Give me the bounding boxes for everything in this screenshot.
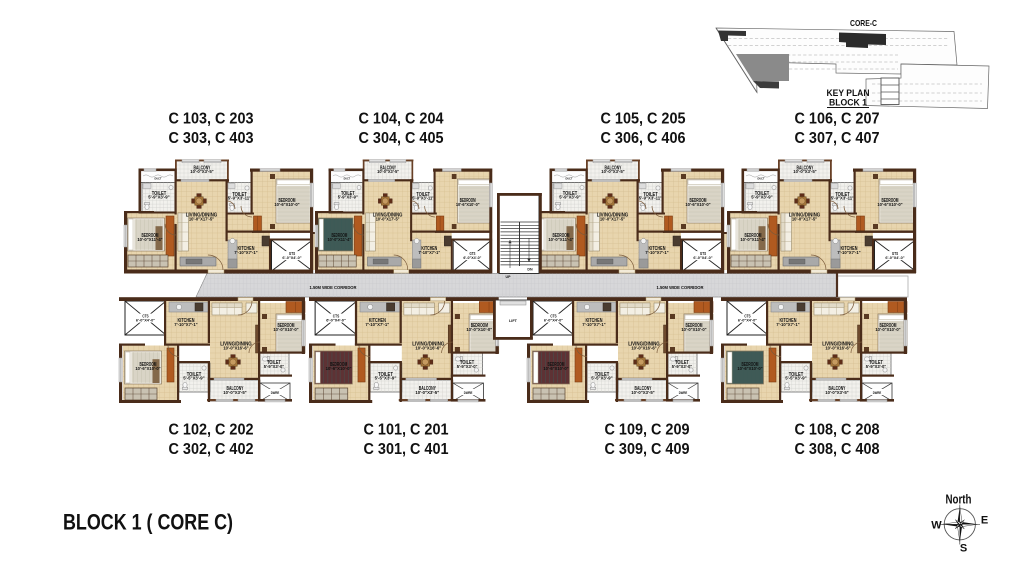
svg-text:10'-0"X10'-0": 10'-0"X10'-0" — [875, 327, 900, 332]
svg-text:10'-0"X17'-5": 10'-0"X17'-5" — [189, 216, 214, 221]
svg-text:5'-9"X3'-9": 5'-9"X3'-9" — [148, 195, 169, 200]
svg-text:C 306, C 406: C 306, C 406 — [601, 130, 686, 147]
svg-text:5'-9"X3'-0": 5'-9"X3'-0" — [264, 364, 284, 369]
svg-text:5'-9"X3'-0": 5'-9"X3'-0" — [672, 364, 692, 369]
svg-text:C 108, C 208: C 108, C 208 — [795, 421, 880, 438]
svg-text:10'-0"X16'-6": 10'-0"X16'-6" — [825, 345, 850, 350]
svg-text:6'-0"X4'-0": 6'-0"X4'-0" — [693, 255, 712, 260]
svg-text:10'-0"X3'-5": 10'-0"X3'-5" — [793, 169, 816, 174]
svg-text:10'-0"X16'-6": 10'-0"X16'-6" — [415, 345, 441, 350]
svg-text:C 104, C 204: C 104, C 204 — [359, 110, 444, 127]
svg-text:6'-0"X4'-0": 6'-0"X4'-0" — [136, 317, 155, 322]
svg-text:10'-0"X11'-4": 10'-0"X11'-4" — [548, 237, 573, 242]
svg-text:E: E — [981, 515, 988, 527]
svg-text:6'-0"X4'-0": 6'-0"X4'-0" — [282, 255, 301, 260]
svg-text:UP: UP — [506, 275, 512, 279]
svg-text:DUCT: DUCT — [758, 176, 765, 180]
svg-text:10'-0"X17'-5": 10'-0"X17'-5" — [600, 216, 625, 221]
svg-text:C 307, C 407: C 307, C 407 — [795, 130, 880, 147]
svg-text:10'-0"X11'-4": 10'-0"X11'-4" — [137, 237, 162, 242]
svg-text:C 302, C 402: C 302, C 402 — [169, 441, 254, 458]
svg-text:C 303, C 403: C 303, C 403 — [169, 130, 254, 147]
svg-text:10'-0"X16'-6": 10'-0"X16'-6" — [631, 345, 656, 350]
svg-text:6'-0"X4'-0": 6'-0"X4'-0" — [463, 256, 481, 260]
svg-text:5'-9"X3'-11": 5'-9"X3'-11" — [228, 196, 251, 201]
svg-text:1.50M WIDE CORRIDOR: 1.50M WIDE CORRIDOR — [310, 285, 358, 290]
svg-text:C 301, C 401: C 301, C 401 — [364, 441, 449, 458]
svg-text:6'-0"X4'-0": 6'-0"X4'-0" — [326, 317, 346, 322]
svg-text:DN: DN — [527, 268, 533, 272]
svg-text:7'-10"X7'-1": 7'-10"X7'-1" — [418, 250, 440, 255]
svg-text:5'-9"X3'-9": 5'-9"X3'-9" — [338, 194, 358, 199]
svg-text:10'-0"X3'-5": 10'-0"X3'-5" — [377, 169, 399, 174]
svg-text:5'-9"X3'-11": 5'-9"X3'-11" — [412, 195, 434, 200]
svg-text:10'-0"X3'-5": 10'-0"X3'-5" — [601, 169, 624, 174]
svg-text:10'-0"X10'-0": 10'-0"X10'-0" — [273, 327, 298, 332]
svg-text:7'-10"X7'-1": 7'-10"X7'-1" — [645, 250, 668, 255]
svg-text:10'-6"X10'-0": 10'-6"X10'-0" — [135, 366, 160, 371]
svg-text:DWRE: DWRE — [873, 391, 882, 395]
svg-text:DUCT: DUCT — [566, 176, 573, 180]
svg-text:LIFT: LIFT — [509, 319, 518, 323]
svg-text:5'-5"X3'-9": 5'-5"X3'-9" — [591, 376, 612, 381]
svg-text:10'-0"X10'-0": 10'-0"X10'-0" — [466, 327, 492, 332]
svg-text:10'-0"X3'-5": 10'-0"X3'-5" — [631, 390, 654, 395]
svg-text:C 109, C 209: C 109, C 209 — [605, 421, 690, 438]
svg-text:5'-5"X3'-9": 5'-5"X3'-9" — [183, 376, 204, 381]
svg-text:C 106, C 207: C 106, C 207 — [795, 110, 880, 127]
svg-text:10'-0"X3'-5": 10'-0"X3'-5" — [825, 390, 848, 395]
svg-text:CORE-C: CORE-C — [850, 18, 877, 28]
svg-text:7'-10"X7'-1": 7'-10"X7'-1" — [174, 322, 197, 327]
svg-text:6'-0"X4'-0": 6'-0"X4'-0" — [885, 255, 904, 260]
svg-text:7'-10"X7'-1": 7'-10"X7'-1" — [776, 322, 799, 327]
svg-text:10'-6"X10'-0": 10'-6"X10'-0" — [326, 366, 352, 371]
svg-text:5'-9"X3'-9": 5'-9"X3'-9" — [559, 195, 580, 200]
svg-text:10'-0"X3'-5": 10'-0"X3'-5" — [190, 169, 213, 174]
svg-text:10'-0"X10'-0": 10'-0"X10'-0" — [681, 327, 706, 332]
svg-text:DWRE: DWRE — [464, 391, 473, 395]
svg-text:7'-10"X7'-1": 7'-10"X7'-1" — [837, 250, 860, 255]
svg-text:1.50M WIDE CORRIDOR: 1.50M WIDE CORRIDOR — [657, 285, 705, 290]
svg-text:C 102, C 202: C 102, C 202 — [169, 421, 254, 438]
svg-text:10'-0"X16'-6": 10'-0"X16'-6" — [223, 345, 248, 350]
svg-text:10'-6"X10'-0": 10'-6"X10'-0" — [685, 202, 710, 207]
svg-text:5'-9"X3'-0": 5'-9"X3'-0" — [866, 364, 886, 369]
svg-text:10'-6"X10'-0": 10'-6"X10'-0" — [543, 366, 568, 371]
svg-text:DUCT: DUCT — [344, 176, 351, 180]
svg-text:10'-0"X3'-5": 10'-0"X3'-5" — [415, 390, 439, 395]
svg-text:North: North — [946, 492, 972, 507]
svg-text:C 304, C 405: C 304, C 405 — [359, 130, 444, 147]
svg-text:5'-9"X3'-11": 5'-9"X3'-11" — [639, 196, 662, 201]
svg-text:DUCT: DUCT — [155, 176, 162, 180]
svg-text:7'-10"X7'-1": 7'-10"X7'-1" — [234, 250, 257, 255]
svg-text:10'-6"X10'-0": 10'-6"X10'-0" — [737, 366, 762, 371]
svg-text:DWRE: DWRE — [271, 391, 280, 395]
svg-text:7'-10"X7'-1": 7'-10"X7'-1" — [365, 322, 389, 327]
svg-text:10'-0"X3'-5": 10'-0"X3'-5" — [223, 390, 246, 395]
svg-text:5'-9"X3'-11": 5'-9"X3'-11" — [831, 196, 854, 201]
svg-text:C 308, C 408: C 308, C 408 — [795, 441, 880, 458]
svg-text:6'-0"X4'-0": 6'-0"X4'-0" — [544, 317, 563, 322]
svg-text:S: S — [960, 543, 967, 555]
svg-text:10'-6"X10'-0": 10'-6"X10'-0" — [274, 202, 299, 207]
svg-text:C 101, C 201: C 101, C 201 — [364, 421, 449, 438]
svg-text:5'-9"X3'-0": 5'-9"X3'-0" — [457, 364, 478, 369]
svg-text:10'-0"X11'-4": 10'-0"X11'-4" — [740, 237, 765, 242]
svg-text:10'-0"X11'-4": 10'-0"X11'-4" — [328, 237, 352, 242]
svg-text:5'-5"X3'-9": 5'-5"X3'-9" — [785, 376, 806, 381]
svg-text:10'-6"X10'-0": 10'-6"X10'-0" — [456, 202, 480, 207]
svg-text:7'-10"X7'-1": 7'-10"X7'-1" — [582, 322, 605, 327]
svg-text:10'-6"X10'-0": 10'-6"X10'-0" — [877, 202, 902, 207]
svg-text:C 309, C 409: C 309, C 409 — [605, 441, 690, 458]
svg-text:C 103, C 203: C 103, C 203 — [169, 110, 254, 127]
svg-text:C 105, C 205: C 105, C 205 — [601, 110, 686, 127]
svg-text:10'-0"X17'-5": 10'-0"X17'-5" — [792, 216, 817, 221]
svg-text:BLOCK 1: BLOCK 1 — [829, 98, 868, 109]
svg-text:5'-9"X3'-9": 5'-9"X3'-9" — [751, 195, 772, 200]
svg-text:BLOCK 1 ( CORE C): BLOCK 1 ( CORE C) — [63, 510, 233, 535]
svg-text:6'-0"X4'-0": 6'-0"X4'-0" — [738, 317, 757, 322]
svg-text:W: W — [931, 520, 942, 532]
svg-text:5'-5"X3'-9": 5'-5"X3'-9" — [375, 376, 397, 381]
svg-text:DWRE: DWRE — [679, 391, 688, 395]
svg-text:10'-0"X17'-5": 10'-0"X17'-5" — [376, 216, 400, 221]
